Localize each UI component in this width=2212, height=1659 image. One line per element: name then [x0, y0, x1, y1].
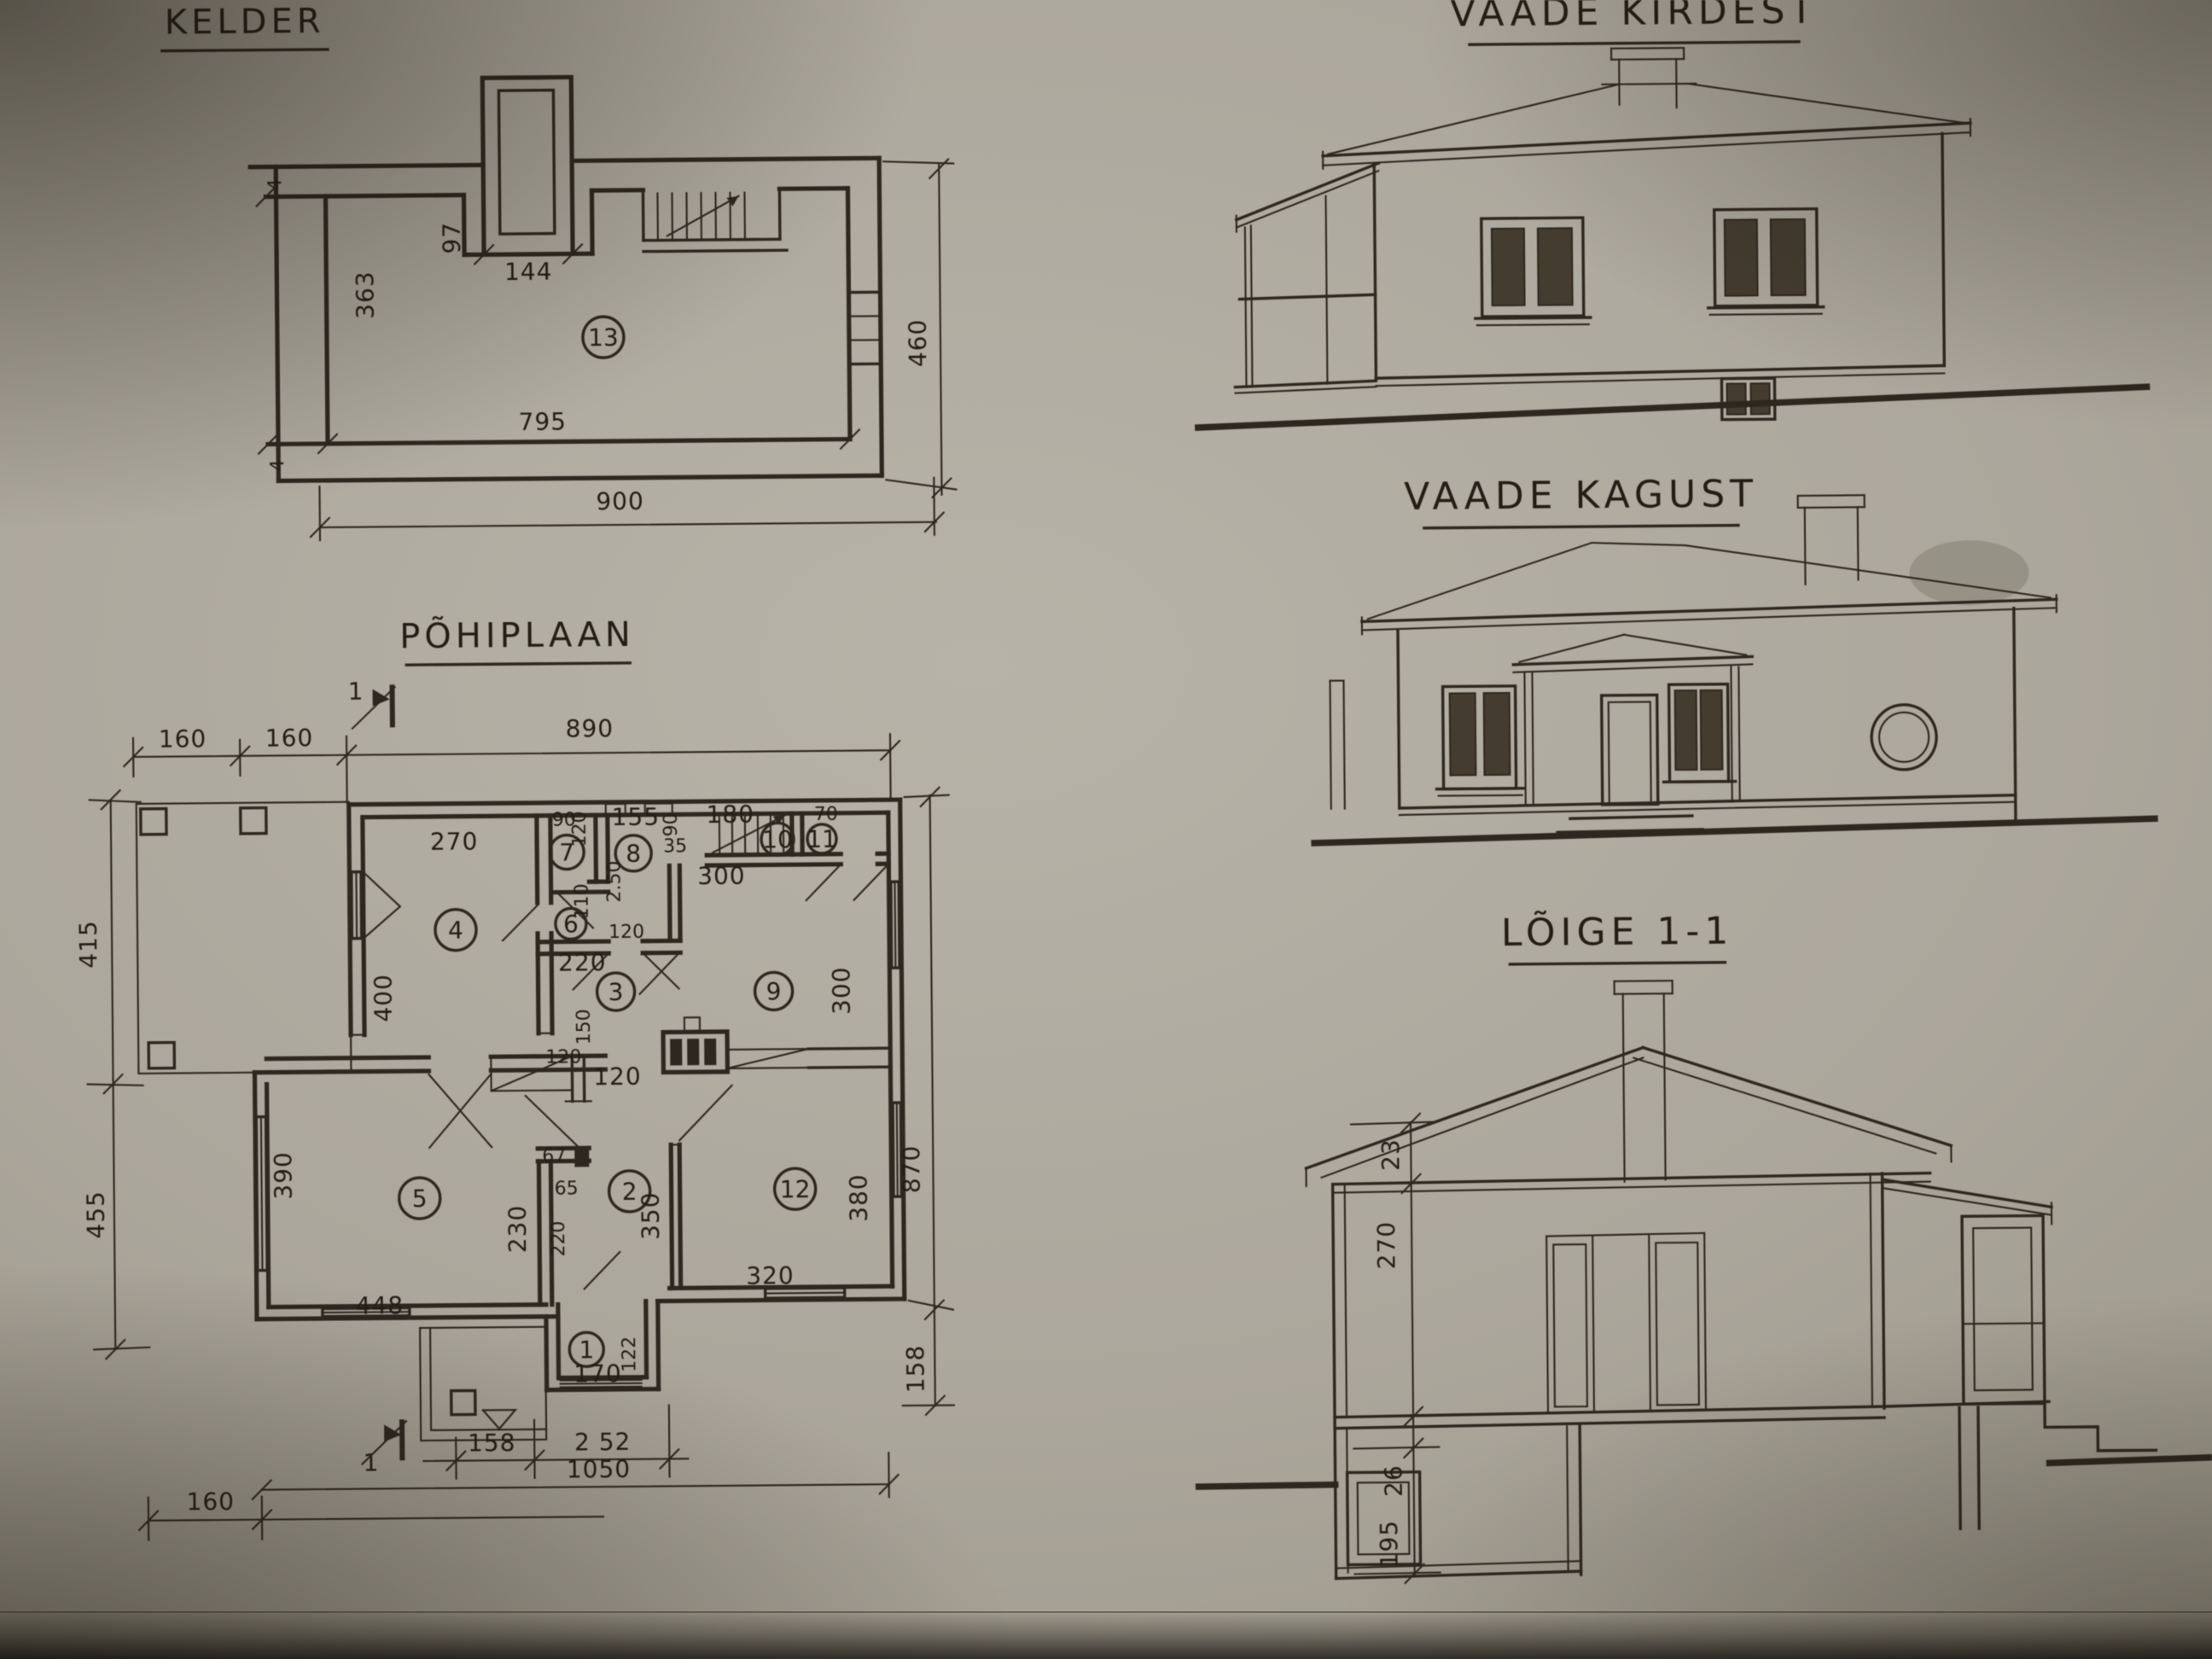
photo-bottom-shadow [0, 1613, 2212, 1659]
photo-vignette [0, 0, 2212, 1659]
photographed-blueprint: KELDER [0, 0, 2212, 1659]
